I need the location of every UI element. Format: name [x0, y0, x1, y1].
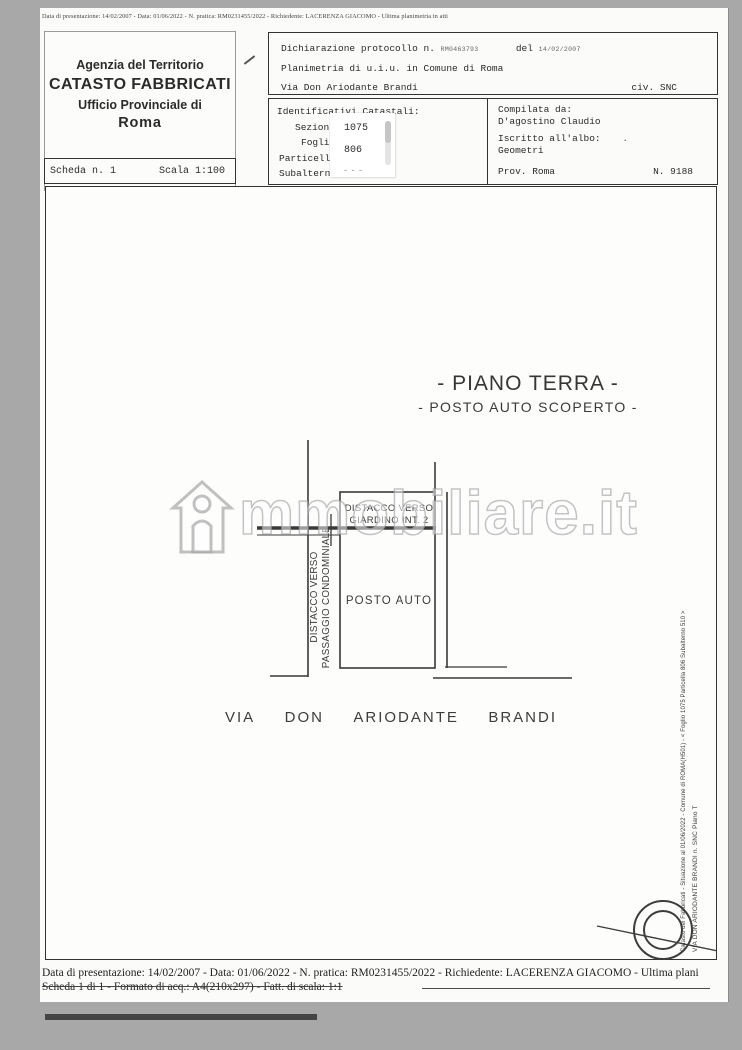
scale-value: Scala 1:100 — [159, 166, 225, 177]
catasto-title: CATASTO FABBRICATI — [45, 76, 235, 94]
protocol-date: 14/02/2007 — [539, 46, 581, 53]
street-name-row: VIA DON ARIODANTE BRANDI — [225, 709, 557, 726]
footer-line-1: Data di presentazione: 14/02/2007 - Data… — [42, 967, 728, 979]
street-word: BRANDI — [488, 709, 557, 726]
office-city: Roma — [45, 115, 235, 131]
prov-row: Prov. Roma N. 9188 — [498, 166, 717, 178]
side-caption-address: VIA DON ARIODANTE BRANDI n. SNC Piano T — [692, 805, 700, 952]
top-margin-caption: Data di presentazione: 14/02/2007 - Data… — [42, 13, 726, 20]
document-page: Data di presentazione: 14/02/2007 - Data… — [40, 8, 729, 1002]
stamp-inner-circle — [644, 911, 682, 949]
declaration-box: Dichiarazione protocollo n. RM0463793 de… — [268, 32, 718, 95]
spacer — [498, 157, 717, 166]
overlay-scrollbar-thumb — [385, 121, 391, 143]
del-label: del — [516, 43, 533, 54]
particella-value: 806 — [344, 145, 362, 156]
identifiers-values-overlay: 1075 806 - - - — [330, 113, 395, 177]
civic-number: civ. SNC — [631, 78, 677, 97]
side-caption-catasto: Catasto dei Fabbricati - Situazione al 0… — [680, 610, 688, 952]
albo-mark: . — [622, 133, 628, 144]
street-word: VIA — [225, 709, 255, 726]
albo-value: Geometri — [498, 145, 717, 157]
scanned-cadastral-document: Data di presentazione: 14/02/2007 - Data… — [0, 0, 742, 1050]
protocol-line: Dichiarazione protocollo n. RM0463793 de… — [281, 39, 707, 59]
passaggio-label-line1: DISTACCO VERSO — [309, 551, 320, 642]
compiler-box: Compilata da: D'agostino Claudio Iscritt… — [487, 99, 717, 184]
planimetria-line: Planimetria di u.i.u. in Comune di Roma — [281, 59, 707, 78]
registration-number: N. 9188 — [653, 166, 693, 178]
strike-line-extension — [422, 988, 710, 989]
agency-name: Agenzia del Territorio — [45, 58, 235, 72]
floor-plan-drawing: DISTACCO VERSO GIARDINO INT. 2 POSTO AUT… — [45, 186, 717, 960]
address-line: Via Don Ariodante Brandi civ. SNC — [281, 78, 707, 97]
posto-auto-label: POSTO AUTO — [346, 595, 432, 607]
albo-label: Iscritto all'albo: — [498, 133, 601, 144]
street-word: DON — [285, 709, 324, 726]
protocol-number: RM0463793 — [441, 46, 479, 53]
office-line: Ufficio Provinciale di — [45, 98, 235, 112]
pen-mark — [244, 55, 255, 65]
foglio-value: 1075 — [344, 123, 368, 134]
protocol-label: Dichiarazione protocollo n. — [281, 43, 435, 54]
prov-label: Prov. Roma — [498, 166, 555, 178]
giardino-label-line1: DISTACCO VERSO — [345, 503, 433, 514]
overlay-scrollbar — [385, 121, 391, 165]
street-word: ARIODANTE — [353, 709, 459, 726]
footer-line-2: Scheda 1 di 1 - Formato di acq.: A4(210x… — [42, 981, 343, 993]
passaggio-label-line2: PASSAGGIO CONDOMINIALE — [321, 526, 332, 669]
albo-row: Iscritto all'albo: . — [498, 133, 717, 145]
street-address: Via Don Ariodante Brandi — [281, 78, 418, 97]
scan-edge-bar — [45, 1014, 317, 1020]
compiler-name: D'agostino Claudio — [498, 116, 717, 128]
scheda-number: Scheda n. 1 — [50, 166, 116, 177]
compiler-title: Compilata da: — [498, 104, 717, 116]
scheda-scale-box: Scheda n. 1 Scala 1:100 — [44, 158, 236, 184]
subalterno-value: - - - — [344, 165, 363, 175]
giardino-label-line2: GIARDINO INT. 2 — [350, 515, 429, 526]
